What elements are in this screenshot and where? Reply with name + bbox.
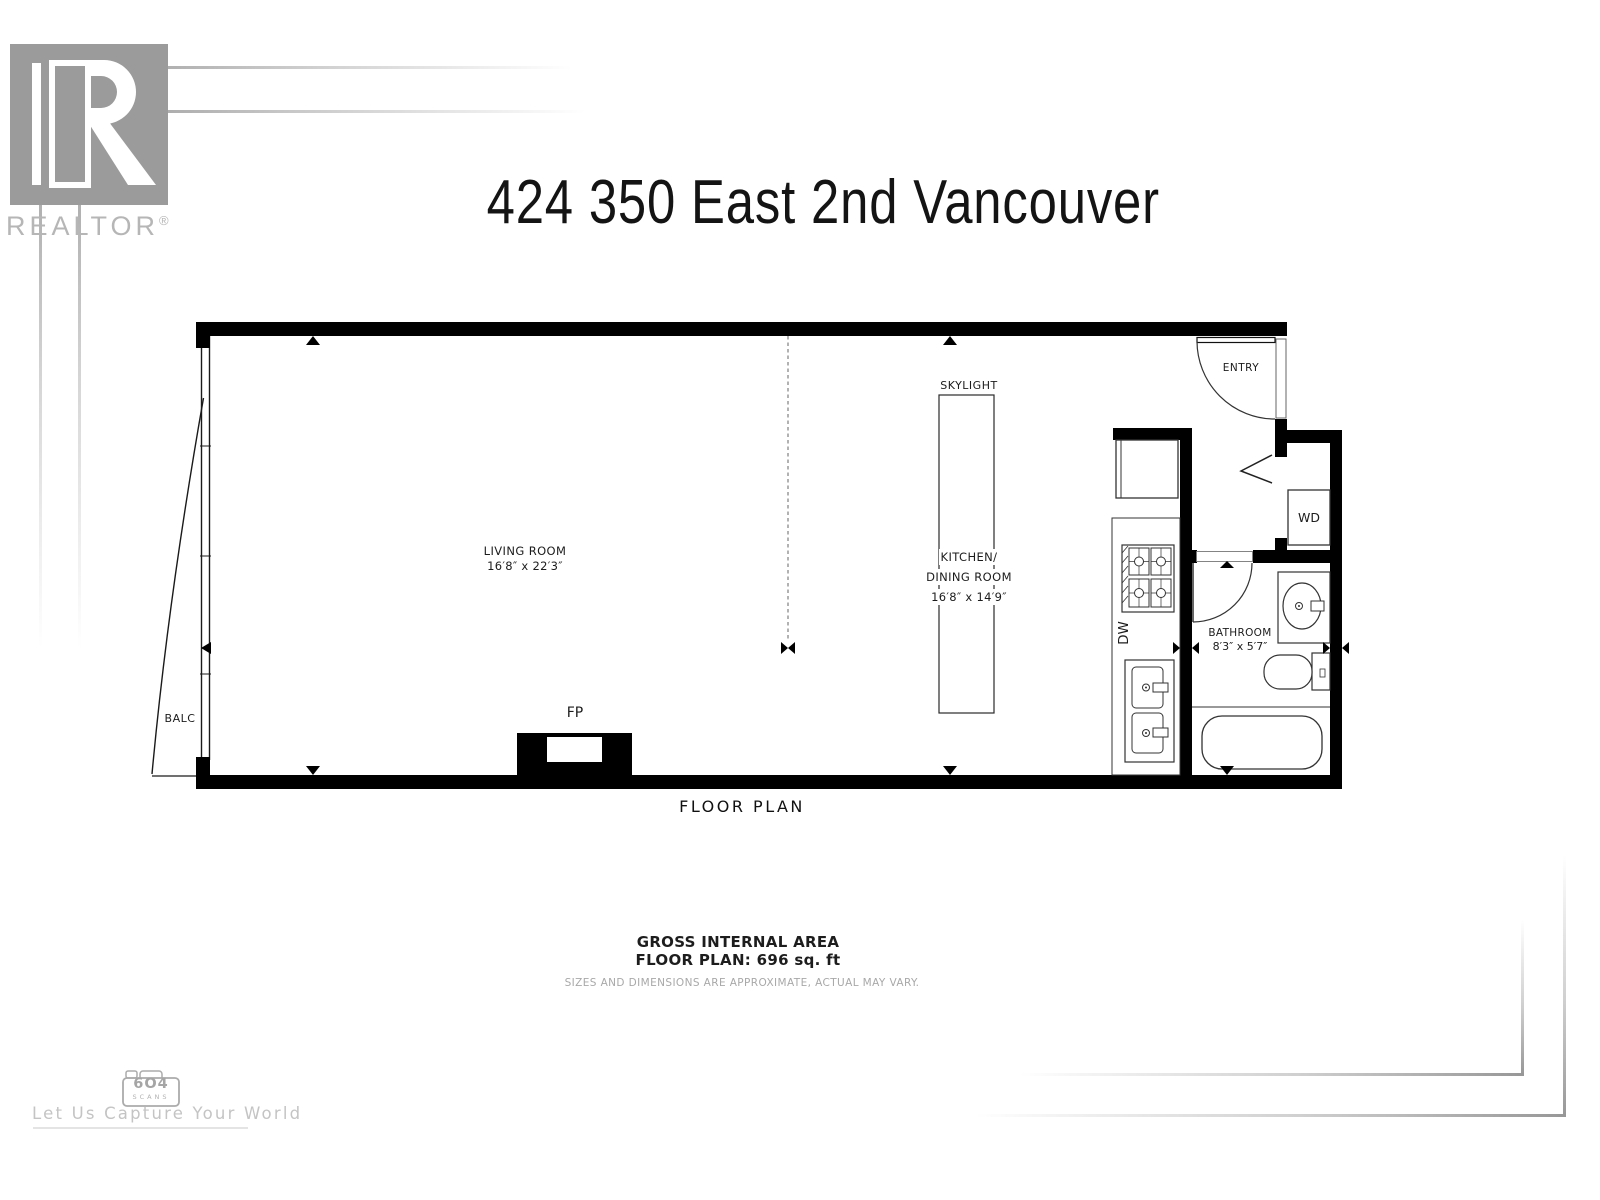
- window-wall: [200, 336, 211, 760]
- toilet: [1264, 653, 1330, 690]
- page: REALTOR® 424 350 East 2nd Vancouver: [0, 0, 1600, 1200]
- floor-plan-caption: FLOOR PLAN: [592, 797, 892, 816]
- bathroom-door: [1193, 552, 1253, 623]
- kitchen-line1: KITCHEN/: [939, 549, 1000, 565]
- living-room-label: LIVING ROOM: [425, 544, 625, 558]
- balcony-label: BALC: [150, 712, 210, 726]
- dimension-markers: [201, 336, 1349, 775]
- footer-logo-number: 6O4: [123, 1076, 179, 1092]
- footer-tagline: Let Us Capture Your World: [32, 1104, 302, 1123]
- fireplace-label: FP: [545, 705, 605, 723]
- entry-door: [1197, 338, 1286, 420]
- bathroom-dims: 8′3″ x 5′7″: [1190, 640, 1290, 654]
- living-room-dims: 16′8″ x 22′3″: [425, 559, 625, 573]
- dishwasher-label: DW: [1116, 616, 1146, 650]
- kitchen-dining-label: KITCHEN/ DINING ROOM 16′8″ x 14′9″: [869, 546, 1069, 606]
- kitchen-dims: 16′8″ x 14′9″: [929, 589, 1009, 605]
- closet-bifold-door: [1241, 455, 1272, 483]
- entry-label: ENTRY: [1191, 362, 1291, 375]
- bathroom-label: BATHROOM: [1190, 627, 1290, 640]
- gross-area-value: FLOOR PLAN: 696 sq. ft: [538, 951, 938, 969]
- fridge: [1116, 440, 1178, 498]
- gross-area-heading: GROSS INTERNAL AREA: [538, 933, 938, 951]
- footer-logo-word: SCANS: [123, 1093, 179, 1101]
- washer-dryer-label: WD: [1288, 510, 1330, 526]
- skylight-label: SKYLIGHT: [869, 379, 1069, 393]
- bathtub: [1192, 707, 1330, 769]
- kitchen-line2: DINING ROOM: [924, 569, 1014, 585]
- kitchen-sink: [1125, 660, 1174, 762]
- fireplace: [517, 733, 632, 789]
- disclaimer-text: SIZES AND DIMENSIONS ARE APPROXIMATE, AC…: [542, 977, 942, 989]
- floor-plan-drawing: [0, 0, 1600, 1200]
- stove: [1122, 545, 1174, 612]
- footer-tagline-rule: [33, 1127, 248, 1129]
